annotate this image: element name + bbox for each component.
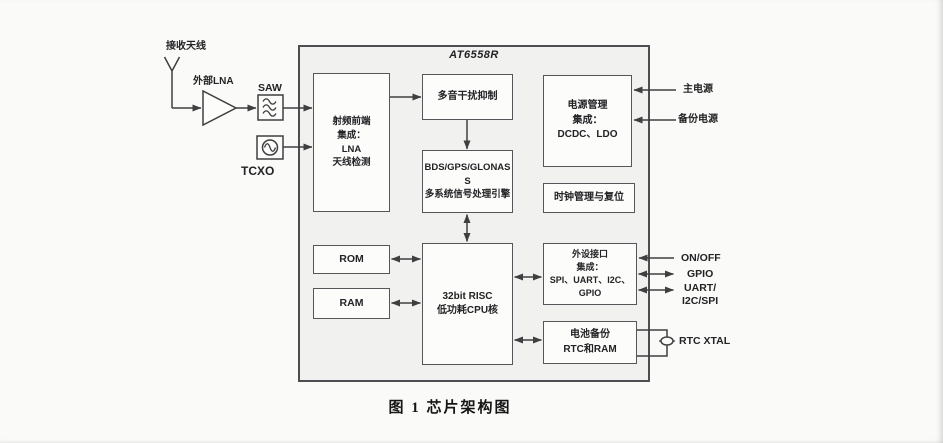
uart-i2c-spi-label: UART/ I2C/SPI <box>682 282 718 307</box>
uart-label-line1: UART/ <box>682 282 718 295</box>
saw-label: SAW <box>258 82 282 95</box>
block-multitone-suppression: 多音干扰抑制 <box>422 74 513 120</box>
oscillator-icon <box>257 136 283 159</box>
block-line: S <box>464 175 470 189</box>
block-peripheral-interface: 外设接口 集成： SPI、UART、I2C、 GPIO <box>543 243 637 305</box>
block-line: DCDC、LDO <box>558 128 618 143</box>
block-bds-engine: BDS/GPS/GLONAS S 多系统信号处理引擎 <box>422 150 513 213</box>
block-line: RTC和RAM <box>563 343 616 358</box>
block-cpu: 32bit RISC 低功耗CPU核 <box>422 243 513 365</box>
lna-label: 外部LNA <box>193 76 234 88</box>
block-line: GPIO <box>579 287 602 300</box>
figure-caption: 图 1 芯片架构图 <box>330 396 570 417</box>
block-rom: ROM <box>313 245 390 274</box>
saw-filter-icon <box>258 95 283 120</box>
block-line: 多音干扰抑制 <box>438 90 498 105</box>
block-ram: RAM <box>313 288 390 319</box>
amplifier-triangle-icon <box>203 91 236 125</box>
block-line: 天线检测 <box>332 156 370 170</box>
antenna-label: 接收天线 <box>166 41 206 53</box>
block-battery-backup: 电池备份 RTC和RAM <box>543 321 637 364</box>
block-clock-reset: 时钟管理与复位 <box>543 183 635 213</box>
block-line: ROM <box>339 252 364 267</box>
block-line: RAM <box>340 296 364 311</box>
block-line: 射频前端 <box>332 115 370 129</box>
figure-canvas: AT6558R <box>0 0 943 443</box>
antenna-icon <box>165 57 180 108</box>
block-line: LNA <box>342 143 362 157</box>
block-line: BDS/GPS/GLONAS <box>424 161 510 175</box>
crystal-icon <box>659 337 675 345</box>
wires-layer <box>0 0 943 443</box>
block-rf-frontend: 射频前端 集成： LNA 天线检测 <box>313 73 390 212</box>
block-line: 电池备份 <box>570 328 610 343</box>
on-off-label: ON/OFF <box>681 252 721 265</box>
block-line: 低功耗CPU核 <box>437 304 498 319</box>
backup-power-label: 备份电源 <box>678 114 718 126</box>
block-line: SPI、UART、I2C、 <box>550 274 631 287</box>
block-power-management: 电源管理 集成： DCDC、LDO <box>543 75 632 167</box>
block-line: 集成： <box>576 261 603 274</box>
gpio-label: GPIO <box>687 268 713 281</box>
block-line: 集成： <box>573 114 603 129</box>
block-line: 多系统信号处理引擎 <box>425 188 511 202</box>
tcxo-label: TCXO <box>241 164 274 178</box>
block-line: 时钟管理与复位 <box>554 191 624 206</box>
uart-label-line2: I2C/SPI <box>682 295 718 308</box>
block-line: 外设接口 <box>572 248 608 261</box>
block-line: 32bit RISC <box>442 290 492 305</box>
main-power-label: 主电源 <box>683 84 713 96</box>
rtc-xtal-label: RTC XTAL <box>679 335 730 348</box>
block-line: 电源管理 <box>568 99 608 114</box>
block-line: 集成： <box>337 129 366 143</box>
